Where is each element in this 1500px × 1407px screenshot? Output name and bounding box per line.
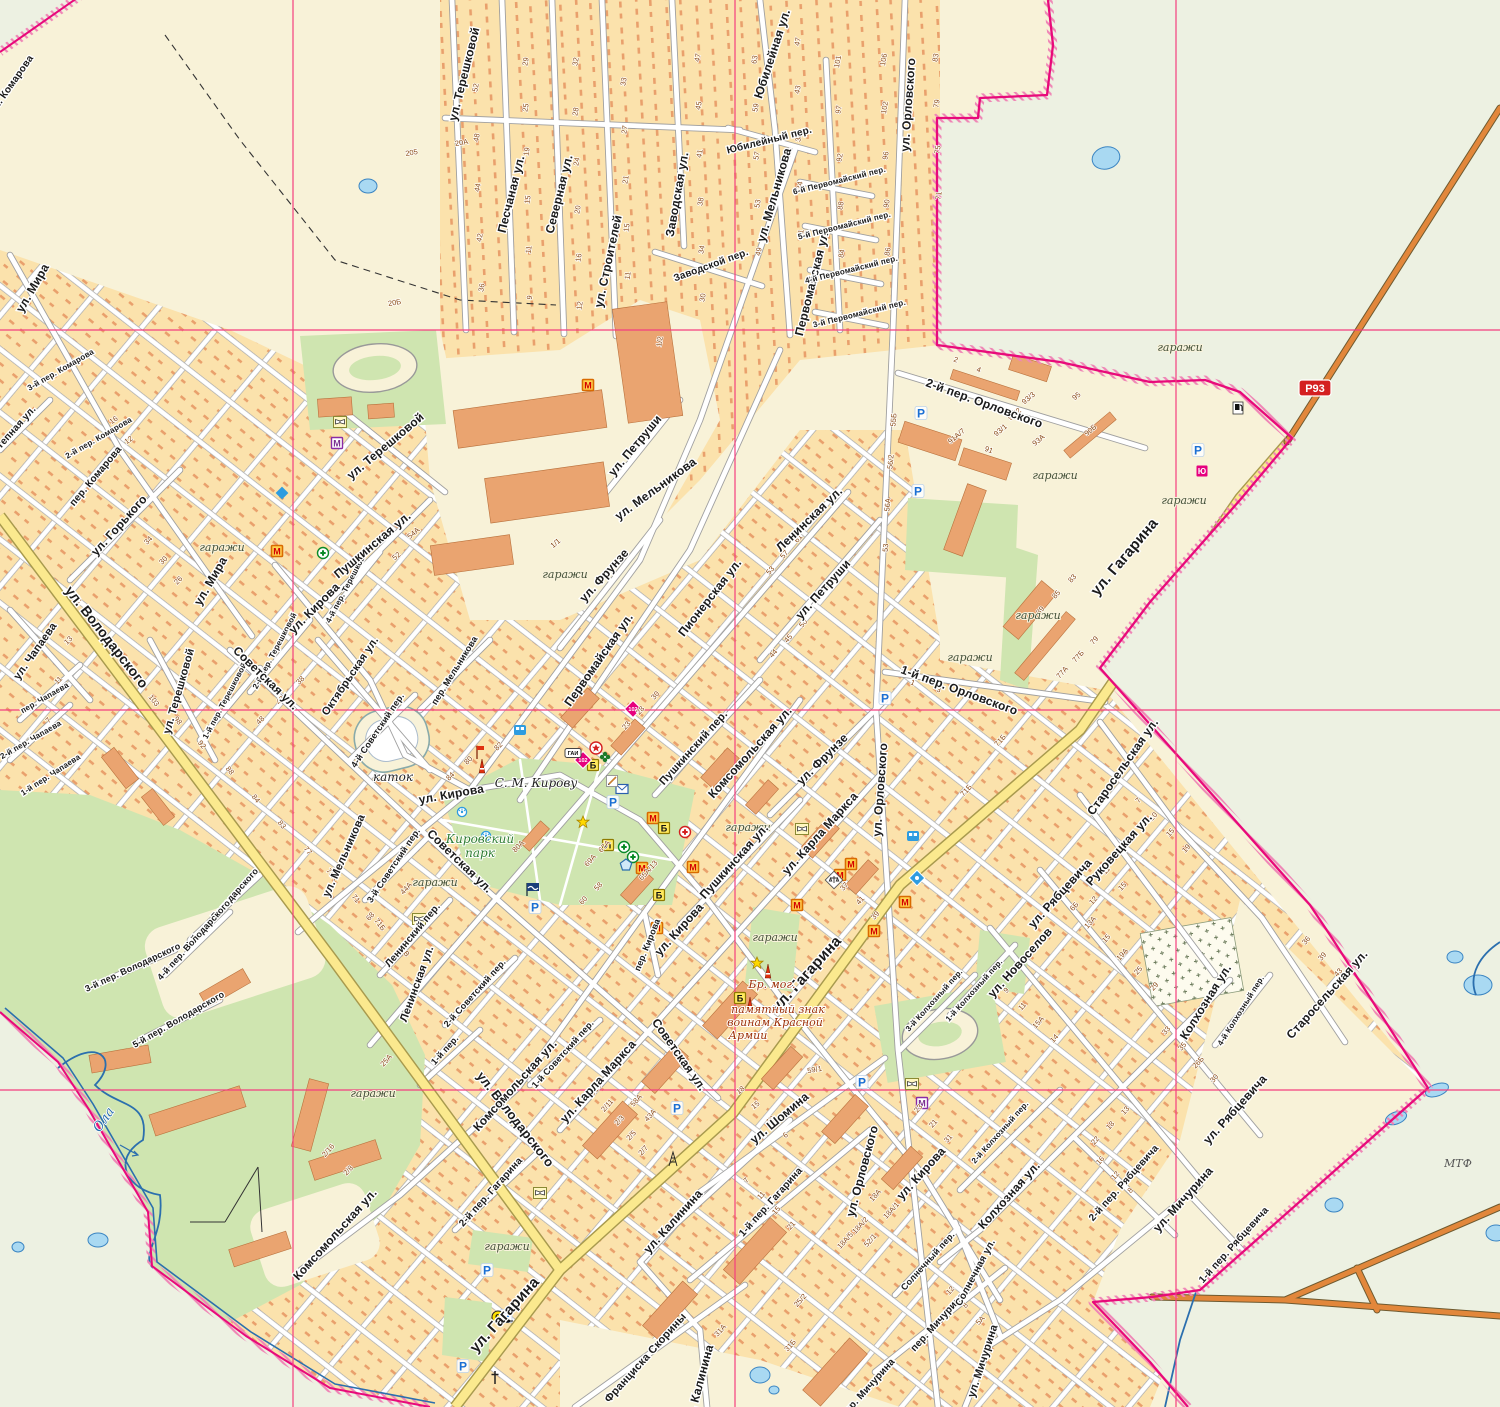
svg-text:Б: Б [590,760,597,770]
road-badges: Р93 [1299,380,1331,396]
jewel-icon: Ю [1197,466,1208,477]
svg-text:М: М [649,813,657,823]
svg-text:Р: Р [531,900,539,914]
place-label: Бр. мог. [748,978,796,991]
byt-icon: Б [735,993,746,1004]
cemetery [1140,918,1243,1007]
house-number: 92 [834,153,844,163]
house-number: 36 [476,283,486,293]
svg-text:Б: Б [661,823,668,833]
house-number: 30 [697,293,707,303]
area-label: гаражи [1032,469,1077,482]
map-canvas: МММММММММММББББПРРРРРРРРРРРММ102102ГАИЮС… [0,0,1500,1407]
svg-text:Р93: Р93 [1305,383,1325,395]
house-number: 41 [694,149,704,159]
house-number: 56/2 [885,454,895,469]
place-label: Армии [728,1029,768,1042]
book-icon [906,1079,919,1090]
shop-icon: М [648,813,659,824]
museum-icon: М [332,438,343,449]
shop-icon: М [900,897,911,908]
house-number: 19 [521,147,531,157]
shop-icon: М [869,926,880,937]
book-icon [796,824,809,835]
svg-text:М: М [847,859,855,869]
svg-text:М: М [584,380,592,390]
parking-icon: Р [481,1263,493,1277]
house-number: 34 [696,245,706,255]
gai-icon: ГАИ [565,749,581,758]
svg-text:Р: Р [917,406,925,420]
house-number: 90 [881,199,891,209]
house-number: 53 [752,199,762,209]
svg-text:Р: Р [1194,443,1202,457]
house-number: 38 [695,197,705,207]
road-badge: Р93 [1299,380,1331,396]
hosp-icon [680,827,691,838]
house-number: 25 [520,103,530,113]
house-number: 44 [472,183,482,193]
house-number: 27 [619,125,629,135]
house-number: 88 [835,201,845,211]
place-label: С. М. Кирову [495,776,578,790]
house-number: 84 [836,249,846,259]
house-number: 56А [882,498,892,512]
place-label: каток [373,770,414,784]
place-label: МТФ [1443,1157,1472,1170]
area-label: гаражи [752,931,797,944]
svg-text:М: М [870,926,878,936]
parking-icon: Р [457,1359,469,1373]
house-number: 83 [930,53,940,63]
parking-icon: Р [856,1075,868,1089]
redstar-icon [590,742,602,754]
svg-text:Р: Р [914,484,922,498]
house-number: 45 [693,101,703,111]
parking-icon: Р [529,900,541,914]
house-number: 63 [749,55,759,65]
house-number: 21 [620,175,630,185]
house-number: 33 [618,77,628,87]
svg-text:Б: Б [737,993,744,1003]
svg-text:ГАИ: ГАИ [568,751,579,757]
shop-icon: М [792,900,803,911]
house-number: 1/2 [654,336,665,348]
book-icon [534,1188,547,1199]
shop-icon: М [688,862,699,873]
svg-text:Р: Р [459,1359,467,1373]
area-label: гаражи [484,1240,529,1253]
house-number: 11 [523,245,533,254]
house-number: 15 [522,195,532,205]
svg-text:Р: Р [609,795,617,809]
area-label: гаражи [947,651,992,664]
area-label: гаражи [1015,609,1060,622]
house-number: 47 [792,37,802,47]
book-icon [334,417,347,428]
svg-text:М: М [901,897,909,907]
place-label: воинам Красной [727,1016,823,1029]
shop-icon: М [846,859,857,870]
house-number: 59 [750,103,760,113]
parking-icon: Р [879,691,891,705]
svg-text:Р: Р [881,691,889,705]
house-number: 55Б [888,413,898,427]
bus-icon [907,831,919,841]
byt-icon: Б [654,890,665,901]
house-number: 49 [753,247,763,257]
house-number: 52 [470,83,480,93]
parking-icon: Р [1192,443,1204,457]
town-map: МММММММММММББББПРРРРРРРРРРРММ102102ГАИЮС… [0,0,1500,1407]
area-label: гаражи [542,568,587,581]
area-label: гаражи [1157,341,1202,354]
parking-icon: Р [671,1101,683,1115]
house-number: 20 [572,205,582,215]
shop-icon: М [272,546,283,557]
parking-icon: Р [915,406,927,420]
area-label: гаражи [199,541,244,554]
fuel-icon [1233,402,1243,414]
house-number: 12 [574,301,584,311]
parking-icon: Р [607,795,619,809]
area-label: гаражи [412,876,457,889]
house-number: 11 [622,271,632,280]
house-number: 47 [692,53,702,63]
svg-text:М: М [333,438,341,448]
svg-text:М: М [273,546,281,556]
pharm-icon [619,842,630,853]
house-number: 29 [520,57,530,67]
svg-text:Р: Р [673,1101,681,1115]
house-number: 79 [931,99,941,109]
svg-text:Ю: Ю [1198,467,1206,476]
bus-icon [514,725,526,735]
svg-text:Р: Р [483,1263,491,1277]
notary-icon [607,776,618,787]
fount-icon [457,807,466,816]
house-number: 42 [474,233,484,243]
place-label: Кировский [445,832,514,846]
house-number: 71 [933,191,943,201]
house-number: 96 [880,151,890,161]
house-number: 53 [881,543,891,552]
house-number: 16 [573,253,583,263]
house-number: 75 [932,145,942,155]
place-label: парк [465,846,496,860]
svg-text:М: М [793,900,801,910]
svg-text:М: М [689,862,697,872]
house-number: 97 [833,105,843,115]
house-number: 48 [471,133,481,143]
svg-text:Б: Б [656,890,663,900]
house-number: 43 [792,85,802,95]
pharm-icon [318,548,329,559]
house-number: 57 [751,151,761,161]
shop-icon: М [583,380,594,391]
byt-icon: Б [659,823,670,834]
svg-text:Р: Р [858,1075,866,1089]
house-number: 28 [570,107,580,117]
area-label: гаражи [350,1087,395,1100]
area-label: гаражи [1161,494,1206,507]
svg-text:102: 102 [578,758,587,764]
house-number: 32 [570,57,580,67]
parking-icon: Р [912,484,924,498]
place-label: памятный знак [731,1003,825,1016]
